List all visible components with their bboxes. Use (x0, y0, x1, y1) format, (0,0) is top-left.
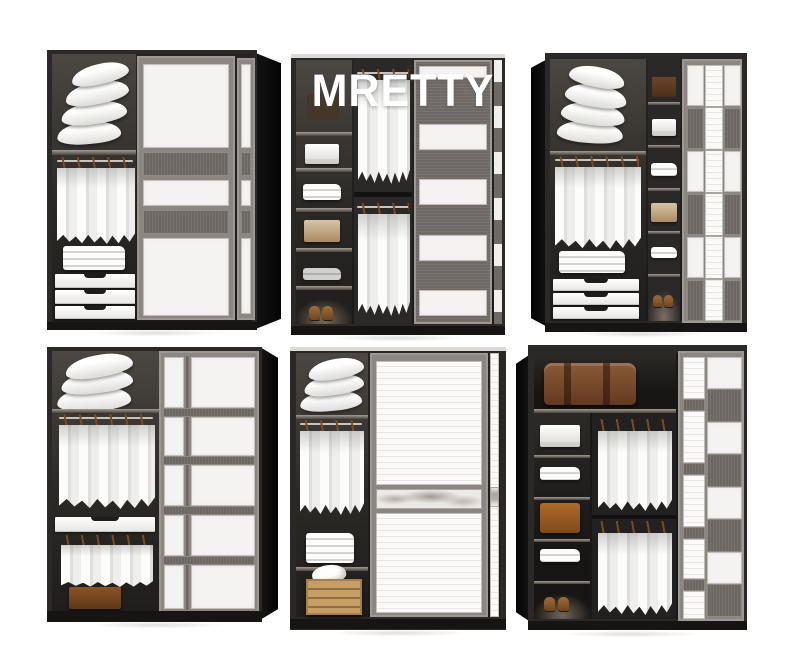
shoe-pair (322, 306, 333, 320)
door-panel (724, 65, 741, 106)
wardrobe-photo-3 (531, 53, 747, 332)
woodgrain-band (683, 579, 705, 591)
ground-shadow (545, 329, 735, 339)
drawer (553, 307, 639, 319)
hanging-shirts (59, 425, 155, 509)
shelf (648, 188, 680, 191)
door-panel (191, 515, 255, 556)
drawer (55, 306, 135, 319)
top-edge (290, 347, 506, 351)
door-panel (164, 515, 184, 556)
top-edge (291, 54, 505, 58)
woodgrain-square (724, 280, 741, 321)
woodgrain-band (143, 210, 229, 234)
door-panel (419, 290, 487, 316)
drawer (55, 517, 155, 532)
door-panel (191, 465, 255, 506)
wardrobe-photo-4 (47, 347, 278, 622)
divider (354, 192, 412, 197)
shoe-pair (664, 295, 673, 307)
caramel-box (540, 503, 580, 533)
cabinet-front (545, 53, 747, 332)
door-panel (164, 417, 184, 456)
second-door-strip (237, 58, 255, 320)
woodgrain-block (707, 584, 742, 617)
brand-watermark: MRETTY (297, 69, 509, 115)
door-panel (143, 238, 229, 316)
door-panel (419, 179, 487, 205)
folded-towels (540, 549, 580, 562)
ribbed-panel (490, 353, 499, 617)
ribbed-panel (683, 357, 705, 399)
ribbed-panel (376, 513, 482, 613)
woodgrain-band (163, 408, 255, 417)
ribbed-panel (683, 539, 705, 579)
drawer (553, 279, 639, 291)
white-box (305, 144, 339, 164)
door-panel (164, 465, 184, 506)
white-box (540, 425, 580, 447)
door-panel (191, 417, 255, 456)
door-panel (191, 357, 255, 408)
panel-divider (705, 235, 723, 237)
tan-box (304, 220, 340, 242)
hanging-shirts (555, 167, 641, 249)
door-panel (419, 124, 487, 150)
woodgrain-square (687, 280, 704, 321)
cabinet-front (47, 50, 257, 330)
ground-shadow (530, 629, 730, 639)
sliding-door (370, 353, 488, 617)
door-panel (687, 151, 704, 192)
woodgrain-square (724, 108, 741, 149)
folded-clothes (63, 246, 125, 270)
wardrobe-photo-6 (516, 345, 747, 630)
woodgrain-block (707, 389, 742, 422)
door-panel (687, 65, 704, 106)
cabinet-front (528, 345, 747, 630)
shelf (296, 168, 352, 172)
sliding-door (678, 351, 744, 621)
shelf (534, 497, 590, 500)
folded-towel (651, 247, 677, 258)
door-panel (687, 237, 704, 278)
ribbed-panel (683, 475, 705, 527)
sliding-door (137, 56, 235, 320)
woodgrain-band (143, 152, 229, 176)
brown-box (69, 587, 121, 609)
door-panel (164, 565, 184, 609)
tan-box (651, 203, 677, 222)
marble-band (376, 489, 482, 509)
vintage-trunk (544, 363, 636, 405)
trunk-strap (564, 363, 571, 405)
drawer (55, 274, 135, 288)
shelf (296, 415, 368, 419)
woodgrain-band (683, 399, 705, 411)
hanging-shirts (358, 214, 410, 316)
white-box (652, 119, 676, 136)
woodgrain-square (724, 194, 741, 235)
woodgrain-band (683, 527, 705, 539)
panel-divider (705, 278, 723, 280)
woodgrain-block (707, 519, 742, 552)
brown-box (652, 77, 676, 97)
wooden-crate (306, 579, 362, 615)
panel-divider (705, 106, 723, 108)
door-panel (164, 357, 184, 408)
drawer (553, 293, 639, 305)
panel-divider (705, 149, 723, 151)
second-door-strip (490, 353, 499, 617)
folded-linens (306, 533, 354, 563)
ground-shadow (60, 620, 255, 630)
door-panel (241, 64, 251, 148)
shelf (52, 150, 136, 155)
shelf (296, 208, 352, 212)
door-panel (707, 552, 742, 584)
shelf (534, 455, 590, 458)
shelf (52, 409, 159, 413)
cabinet-front (290, 347, 506, 630)
shelf (534, 539, 590, 542)
wardrobe-photo-5 (290, 347, 506, 630)
shoe-pair (309, 306, 320, 320)
sliding-door (159, 351, 259, 613)
ground-shadow (300, 628, 498, 638)
shelf (296, 248, 352, 252)
shelf (648, 145, 680, 148)
door-panel (143, 180, 229, 206)
product-image-collage: MRETTY (0, 0, 800, 666)
shelf (648, 231, 680, 234)
hanging-shirts (598, 533, 672, 615)
hanging-shirts (61, 545, 153, 587)
ribbed-panel (683, 411, 705, 463)
boot-pair (558, 597, 569, 611)
shelf (648, 102, 680, 105)
woodgrain-band (163, 456, 255, 465)
door-panel (707, 487, 742, 519)
ribbed-panel (376, 361, 482, 485)
hanging-shirts (598, 431, 672, 511)
folded-linens (559, 251, 625, 273)
door-panel (143, 64, 229, 148)
folded-cloth (303, 268, 341, 280)
folded-towels (540, 467, 580, 480)
wardrobe-photo-1 (47, 50, 281, 331)
trunk-strap (603, 363, 610, 405)
hanging-shirts (57, 168, 135, 244)
woodgrain-divider (185, 355, 190, 611)
cabinet-front (47, 347, 262, 622)
door-panel (419, 235, 487, 261)
shoe-pair (653, 295, 662, 307)
door-panel (241, 238, 251, 314)
shelf (550, 151, 646, 155)
door-panel (724, 151, 741, 192)
woodgrain-band (683, 463, 705, 475)
door-panel (724, 237, 741, 278)
cabinet-side-face (253, 52, 281, 330)
folded-towel (303, 184, 341, 200)
panel-divider (705, 192, 723, 194)
shelf (296, 132, 352, 136)
drawer (55, 290, 135, 304)
divider (592, 515, 676, 519)
ground-shadow (60, 328, 250, 338)
woodgrain-square (687, 194, 704, 235)
woodgrain-square (687, 108, 704, 149)
door-panel (707, 422, 742, 454)
door-panel (707, 357, 742, 389)
woodgrain-band (241, 152, 251, 176)
woodgrain-band (163, 556, 255, 565)
cabinet-side-face (260, 347, 278, 620)
door-panel (241, 180, 251, 206)
boot-pair (544, 597, 555, 611)
hanging-shirts (300, 431, 364, 515)
sliding-door (682, 59, 742, 323)
woodgrain-block (707, 454, 742, 487)
woodgrain-band (241, 210, 251, 234)
folded-towel (651, 163, 677, 176)
ground-shadow (300, 333, 496, 343)
woodgrain-band (163, 506, 255, 515)
door-panel (191, 565, 255, 609)
marble-band (490, 487, 499, 507)
ribbed-panel (683, 591, 705, 619)
